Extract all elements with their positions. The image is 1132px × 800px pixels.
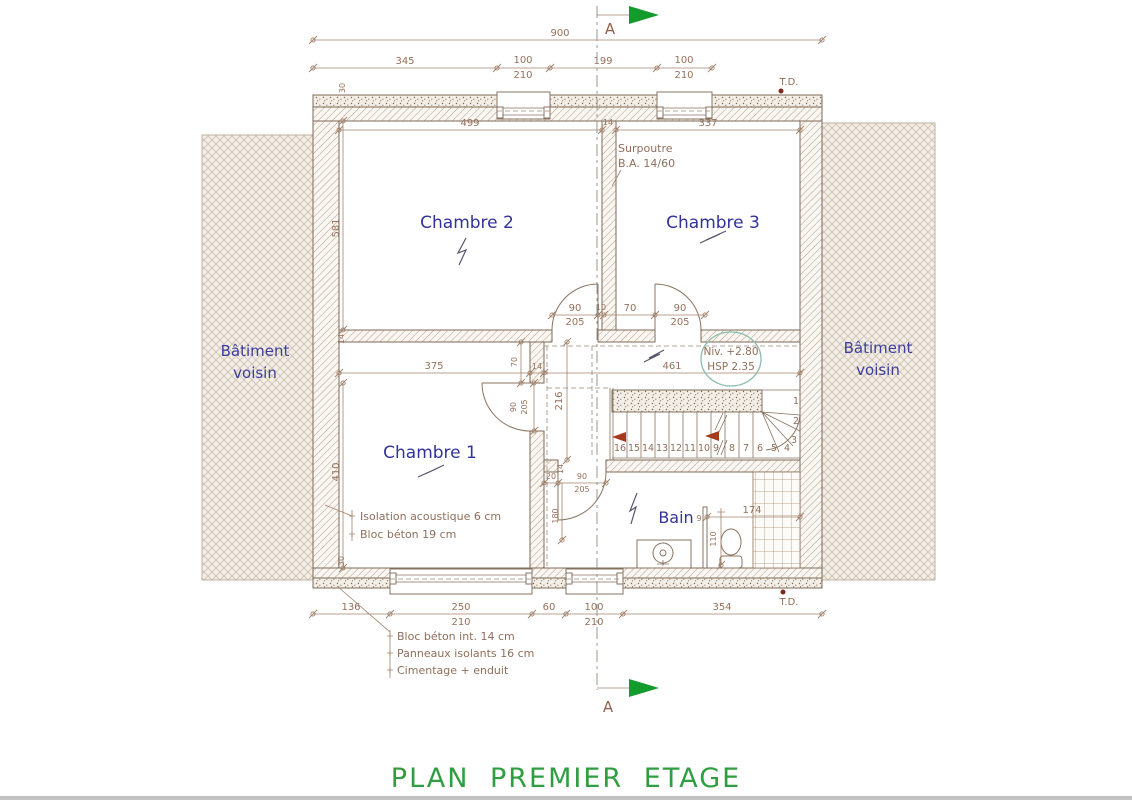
- dim-offset-70: 70: [624, 303, 637, 314]
- section-label-top: A: [605, 20, 616, 38]
- north-zigzag-hall: [644, 350, 664, 362]
- annotation-hsp: HSP 2.35: [707, 361, 755, 373]
- dim-bain-door-90: 90: [577, 472, 587, 481]
- annotation-surpoutre-2: B.A. 14/60: [618, 157, 675, 170]
- annotation-cimentage: Cimentage + enduit: [397, 664, 509, 677]
- dim-wall-30-top: 30: [338, 83, 347, 93]
- section-arrow-bottom: [629, 679, 659, 697]
- tread-number: 1: [793, 396, 799, 407]
- annotation-surpoutre-1: Surpoutre: [618, 142, 673, 155]
- neighbor-left-label-2: voisin: [233, 364, 277, 382]
- annotation-bloc-int: Bloc béton int. 14 cm: [397, 630, 515, 643]
- tread-number: 10: [698, 443, 710, 454]
- window-bottom-2: [566, 569, 623, 594]
- dim-wall-14-mid: 14: [532, 362, 542, 371]
- dim-bain-20: 20: [546, 472, 556, 481]
- window-top-1: [497, 92, 550, 119]
- tread-number: 16: [614, 443, 626, 454]
- north-zigzag-ch1: [418, 465, 444, 477]
- page-title: PLAN PREMIER ETAGE: [391, 763, 741, 794]
- dim-door3-90: 90: [674, 303, 687, 314]
- dim-top-210a: 210: [513, 70, 532, 81]
- wall-top-block: [313, 107, 822, 121]
- dim-door1-90: 90: [509, 402, 518, 412]
- wall-bottom-note: Bloc béton int. 14 cm Panneaux isolants …: [337, 586, 534, 678]
- tread-number: 4: [784, 443, 790, 454]
- dim-ch3-width: 337: [698, 118, 717, 129]
- wall-top-insulation: [313, 95, 822, 107]
- neighbor-building-right: Bâtiment voisin: [822, 123, 935, 580]
- dim-divider-14: 14: [603, 118, 613, 127]
- dim-bot-210a: 210: [451, 617, 470, 628]
- dim-top-210b: 210: [674, 70, 693, 81]
- dim-offset-70-vert: 70: [510, 357, 519, 367]
- page-bottom-edge: [0, 796, 1132, 800]
- td-label-bottom: T.D.: [779, 597, 799, 608]
- window-bottom-1: [390, 569, 532, 594]
- annotation-bloc-beton: Bloc béton 19 cm: [360, 528, 456, 541]
- section-label-bottom: A: [603, 698, 614, 716]
- tread-number: 2: [793, 416, 799, 427]
- floor-plan-page: Bâtiment voisin Bâtiment voisin: [0, 0, 1132, 800]
- north-zigzag-bain: [630, 493, 637, 524]
- wall-ch1-east-lower: [530, 431, 544, 568]
- tread-number: 12: [670, 443, 682, 454]
- dim-wall-14-left: 14: [337, 334, 346, 344]
- dim-bain-110: 110: [709, 531, 718, 546]
- wall-left-note: Isolation acoustique 6 cm Bloc béton 19 …: [325, 505, 501, 541]
- dim-top-199: 199: [593, 56, 612, 67]
- annotation-niveau: Niv. +2.80: [703, 346, 758, 358]
- tread-number: 5: [771, 443, 777, 454]
- sink-drain: [660, 550, 666, 556]
- dim-overall-top: 900: [550, 28, 569, 39]
- dim-top-100a: 100: [513, 55, 532, 66]
- dim-bot-250: 250: [451, 602, 470, 613]
- td-dot-bottom: [781, 590, 786, 595]
- dim-ch1-height: 410: [331, 462, 342, 481]
- tread-number: 8: [729, 443, 735, 454]
- neighbor-right-label-1: Bâtiment: [844, 339, 913, 357]
- tread-number: 13: [656, 443, 668, 454]
- dim-bot-60: 60: [543, 602, 556, 613]
- dim-hall-width: 461: [662, 361, 681, 372]
- tread-number: 14: [642, 443, 654, 454]
- dim-ch1-width: 375: [424, 361, 443, 372]
- annotation-isolation: Isolation acoustique 6 cm: [360, 510, 501, 523]
- dim-top-345: 345: [395, 56, 414, 67]
- dim-door2-205: 205: [565, 317, 584, 328]
- floor-plan-svg: Bâtiment voisin Bâtiment voisin: [0, 0, 1132, 800]
- label-chambre1: Chambre 1: [383, 443, 477, 463]
- annotation-panneaux: Panneaux isolants 16 cm: [397, 647, 534, 660]
- label-chambre3: Chambre 3: [666, 213, 760, 233]
- neighbor-right-label-2: voisin: [856, 361, 900, 379]
- stair-direction-arrow-1: [612, 432, 626, 442]
- tread-number: 3: [791, 435, 797, 446]
- interior-walls: [339, 121, 800, 568]
- dim-ch2-height: 581: [331, 218, 342, 237]
- dim-ch2-width: 499: [460, 118, 479, 129]
- dim-wall-30-bottom: 30: [337, 556, 346, 566]
- dim-bain-door-205: 205: [574, 485, 589, 494]
- tread-number: 6: [757, 443, 763, 454]
- section-arrow-top: [629, 6, 659, 24]
- stair-direction-arrow-2: [705, 431, 719, 441]
- shower-tiles: [753, 472, 800, 568]
- dim-door2-90: 90: [569, 303, 582, 314]
- window-top-2: [657, 92, 712, 119]
- dim-door1-205: 205: [520, 399, 529, 414]
- toilet-bowl: [721, 529, 741, 555]
- tread-number: 11: [684, 443, 696, 454]
- toilet-tank: [720, 556, 742, 568]
- td-dot-top: [779, 89, 784, 94]
- td-label-top: T.D.: [779, 77, 799, 88]
- dim-bain-174: 174: [742, 505, 761, 516]
- dim-bain-180: 180: [551, 508, 560, 523]
- dim-hall-height: 216: [554, 391, 565, 410]
- neighbor-left-label-1: Bâtiment: [221, 342, 290, 360]
- staircase: 16 15 14 13 12 11 10 9 8 7 6 5 4 3 2 1: [610, 388, 800, 460]
- label-chambre2: Chambre 2: [420, 213, 514, 233]
- wall-south-mid: [598, 330, 655, 342]
- dim-bot-100: 100: [584, 602, 603, 613]
- tread-number: 15: [628, 443, 640, 454]
- label-bain: Bain: [658, 508, 693, 527]
- wall-bain-north-right: [606, 460, 800, 472]
- tread-number: 9: [713, 443, 719, 454]
- dim-door3-205: 205: [670, 317, 689, 328]
- dim-bot-210b: 210: [584, 617, 603, 628]
- wall-left: [313, 95, 339, 588]
- dim-top-100b: 100: [674, 55, 693, 66]
- dim-bot-354: 354: [712, 602, 731, 613]
- dim-partition-9: 9: [696, 514, 701, 523]
- dim-bain-14: 14: [556, 464, 565, 474]
- north-zigzag-ch2: [458, 238, 466, 265]
- neighbor-building-left: Bâtiment voisin: [202, 135, 313, 580]
- tread-number: 7: [743, 443, 749, 454]
- stair-landing-band: [612, 390, 762, 412]
